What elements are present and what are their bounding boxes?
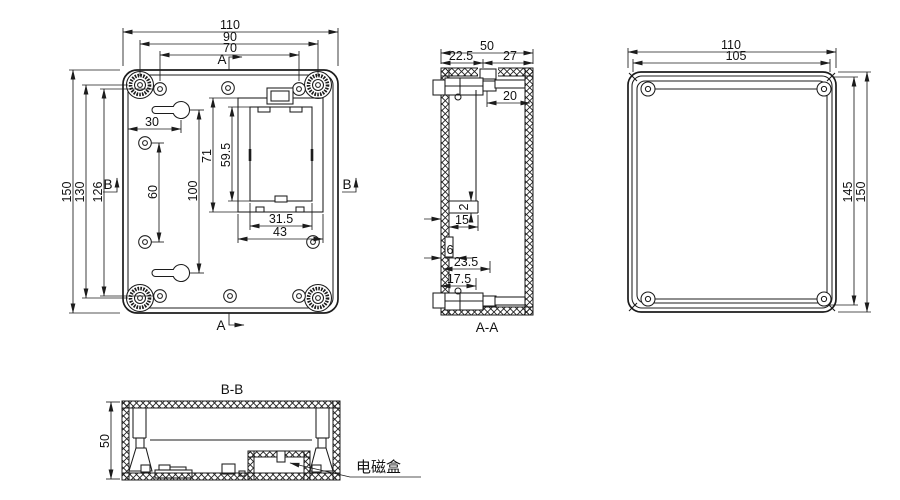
section-aa-label: A-A bbox=[476, 320, 499, 335]
dim-text: 15 bbox=[455, 213, 469, 227]
dim-text: 130 bbox=[73, 182, 87, 203]
screw-post-left bbox=[129, 408, 152, 472]
dim-text: 17.5 bbox=[447, 272, 471, 286]
dim-text: 100 bbox=[186, 181, 200, 202]
lid-mid-outline bbox=[632, 76, 832, 308]
dim-text: 22.5 bbox=[449, 49, 473, 63]
dim-text: 60 bbox=[146, 185, 160, 199]
screw-post-right bbox=[310, 408, 333, 472]
dim-keyhole-spacing: 100 bbox=[186, 110, 204, 273]
section-letter: B bbox=[342, 177, 351, 192]
dim-text: 150 bbox=[854, 182, 868, 203]
keyhole-slot-lower bbox=[152, 264, 190, 281]
section-interior-lines bbox=[445, 90, 478, 257]
shelf-top bbox=[495, 80, 525, 88]
section-marker-b-right: B bbox=[342, 177, 356, 192]
drawing-canvas: 110 90 70 A A B B bbox=[0, 0, 900, 500]
dim-text: 71 bbox=[200, 149, 214, 163]
back-view: 110 90 70 A A B B bbox=[60, 18, 356, 333]
dim-text: 50 bbox=[480, 39, 494, 53]
dim-text: 27 bbox=[503, 49, 517, 63]
wall-right bbox=[525, 68, 533, 315]
section-letter: A bbox=[216, 318, 225, 333]
section-marker-b-left: B bbox=[103, 177, 117, 192]
electromagnetic-box-callout: 电磁盒 bbox=[356, 459, 401, 476]
lid-outer-outline bbox=[628, 72, 836, 312]
section-bb-label: B-B bbox=[221, 382, 244, 397]
dim-text: 20 bbox=[503, 89, 517, 103]
dim-side-holes-spacing: 60 bbox=[146, 143, 164, 242]
dim-bb-height: 50 bbox=[98, 402, 120, 479]
front-view: 110 105 145 150 bbox=[628, 38, 871, 312]
dim-text: 6 bbox=[447, 243, 454, 257]
section-letter: A bbox=[217, 52, 226, 67]
screw-boss-bottom-right bbox=[305, 285, 332, 312]
dim-text: 150 bbox=[60, 182, 74, 203]
section-marker-a-bottom: A bbox=[216, 313, 244, 333]
section-bb-view: 电磁盒 50 B-B bbox=[98, 382, 421, 480]
corner-ticks bbox=[629, 73, 835, 311]
dim-text: 23.5 bbox=[454, 255, 478, 269]
wall-top bbox=[122, 401, 340, 408]
dim-text: 145 bbox=[841, 182, 855, 203]
dim-shelf: 20 bbox=[487, 89, 530, 107]
lid-screw-holes bbox=[641, 82, 831, 306]
lid-inner-outline bbox=[637, 81, 827, 303]
dim-text: 50 bbox=[98, 434, 112, 448]
technical-drawing: 110 90 70 A A B B bbox=[0, 0, 900, 500]
dim-text: 59.5 bbox=[219, 143, 233, 167]
dim-front-width-inner: 105 bbox=[633, 49, 830, 72]
dim-text: 30 bbox=[145, 115, 159, 129]
dim-text: 105 bbox=[726, 49, 747, 63]
dim-text: 126 bbox=[91, 182, 105, 203]
wall-left bbox=[122, 401, 129, 480]
dim-rib: 15 bbox=[424, 213, 478, 231]
dim-keyhole-offset: 30 bbox=[128, 115, 181, 133]
dim-text: 43 bbox=[273, 225, 287, 239]
dim-text: 2 bbox=[457, 203, 471, 210]
wall-right bbox=[333, 401, 340, 480]
dim-text: 31.5 bbox=[269, 212, 293, 226]
battery-compartment bbox=[238, 88, 323, 212]
dim-compartment-inner-height: 59.5 bbox=[219, 107, 250, 201]
section-aa-view: 50 22.5 27 20 2 15 6 bbox=[424, 39, 533, 335]
shelf-bottom bbox=[495, 297, 525, 305]
screw-boss-bottom-left bbox=[127, 285, 154, 312]
